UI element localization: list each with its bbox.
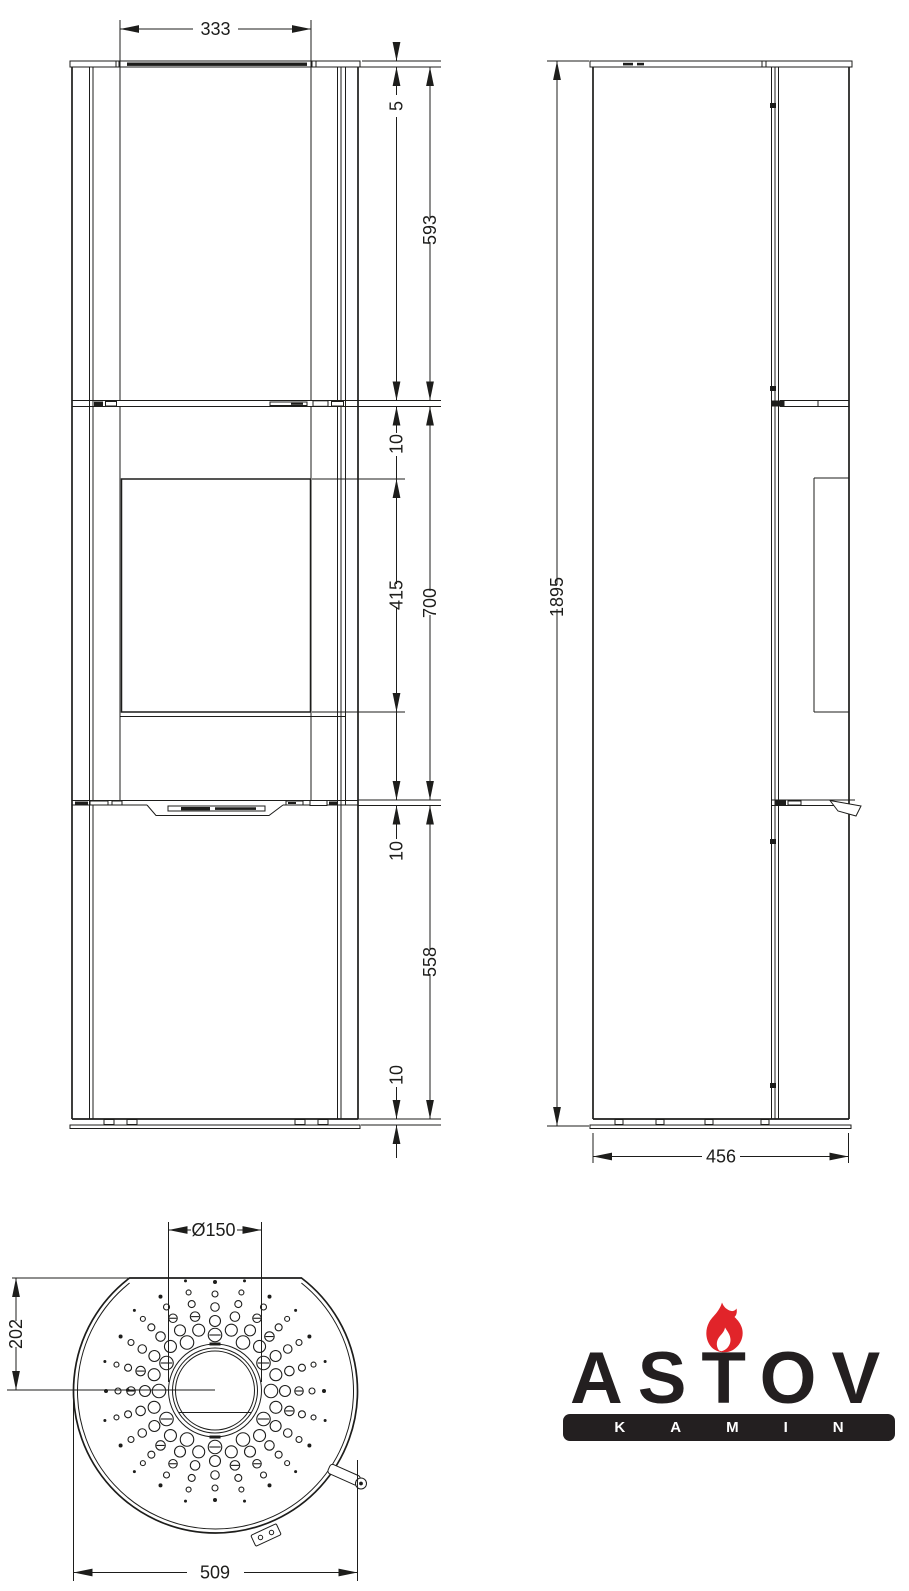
top-view [7, 1278, 367, 1546]
dim-front-gap-mid: 10 [387, 841, 407, 861]
brand-subtitle-bar: KAMIN [563, 1414, 895, 1441]
dim-top-flue-offset: 202 [6, 1319, 26, 1349]
front-view [70, 20, 360, 1129]
dim-front-base: 10 [387, 1065, 407, 1085]
front-view-dimensions: 333 5 10 415 10 10 593 700 [120, 19, 441, 1158]
brand-subtitle: KAMIN [563, 1414, 895, 1441]
brand-name: ASTOV [570, 1342, 900, 1415]
dim-top-width: 509 [200, 1563, 230, 1583]
side-view [590, 61, 861, 1129]
dim-front-gap-top: 10 [387, 434, 407, 454]
dim-front-middle: 700 [420, 588, 440, 618]
dim-front-lower: 558 [420, 947, 440, 977]
dim-front-door-width: 333 [200, 19, 230, 39]
dim-front-plate: 5 [387, 101, 407, 111]
dim-front-glass: 415 [387, 580, 407, 610]
dim-top-flue: Ø150 [191, 1220, 235, 1240]
technical-drawing-page: 333 5 10 415 10 10 593 700 [0, 0, 909, 1591]
dim-front-upper: 593 [420, 215, 440, 245]
dim-side-depth: 456 [706, 1147, 736, 1167]
